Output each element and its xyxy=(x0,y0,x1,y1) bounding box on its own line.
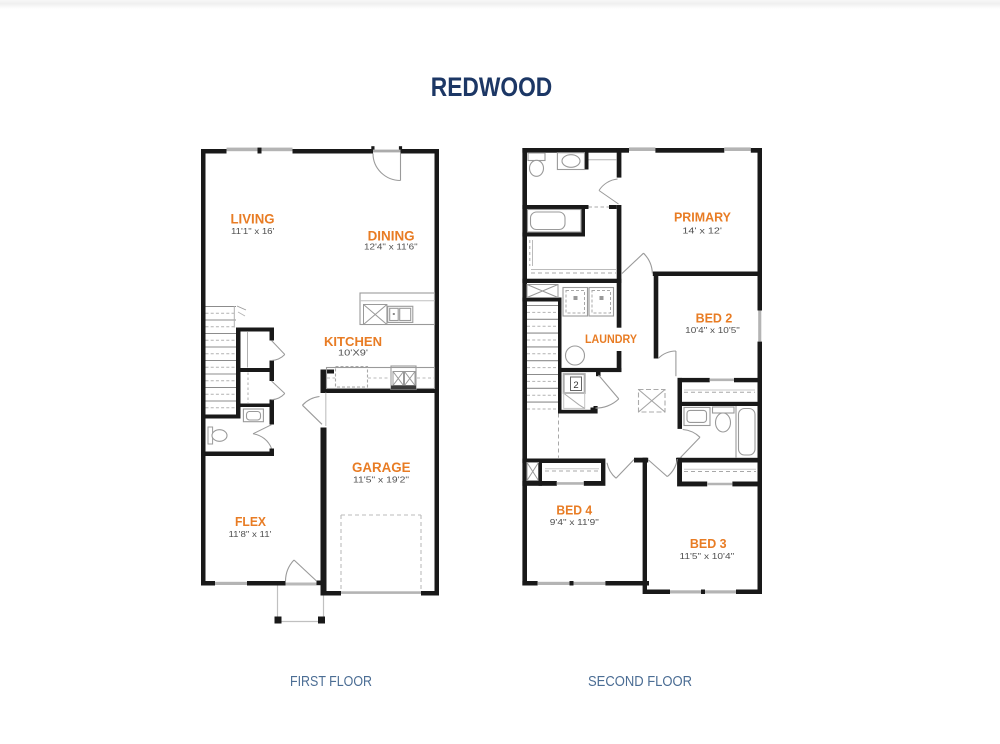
svg-text:FIRST FLOOR: FIRST FLOOR xyxy=(290,673,372,690)
svg-text:BED 4: BED 4 xyxy=(556,504,592,518)
svg-text:FLEX: FLEX xyxy=(235,515,267,529)
svg-text:11'1" x 16': 11'1" x 16' xyxy=(231,227,275,236)
svg-text:11'5" x 19'2": 11'5" x 19'2" xyxy=(353,476,409,485)
svg-text:DINING: DINING xyxy=(368,229,415,244)
svg-text:9'4" x 11'9": 9'4" x 11'9" xyxy=(550,518,599,527)
svg-text:KITCHEN: KITCHEN xyxy=(324,334,382,349)
svg-text:GARAGE: GARAGE xyxy=(352,460,411,475)
svg-text:11'5" x 10'4": 11'5" x 10'4" xyxy=(680,552,735,561)
svg-text:11'8" x 11': 11'8" x 11' xyxy=(229,530,273,539)
svg-text:PRIMARY: PRIMARY xyxy=(674,211,732,225)
svg-text:BED 2: BED 2 xyxy=(696,312,733,326)
svg-text:12'4" x 11'6": 12'4" x 11'6" xyxy=(364,243,418,252)
svg-text:SECOND FLOOR: SECOND FLOOR xyxy=(588,673,692,690)
svg-text:LAUNDRY: LAUNDRY xyxy=(585,334,637,346)
svg-text:14' x 12': 14' x 12' xyxy=(682,227,722,236)
svg-text:2: 2 xyxy=(573,380,578,391)
svg-text:BED 3: BED 3 xyxy=(690,537,727,551)
svg-text:10'4" x 10'5": 10'4" x 10'5" xyxy=(685,326,740,335)
svg-text:LIVING: LIVING xyxy=(231,212,275,227)
svg-text:10'X9': 10'X9' xyxy=(338,349,369,358)
svg-text:REDWOOD: REDWOOD xyxy=(431,72,553,102)
